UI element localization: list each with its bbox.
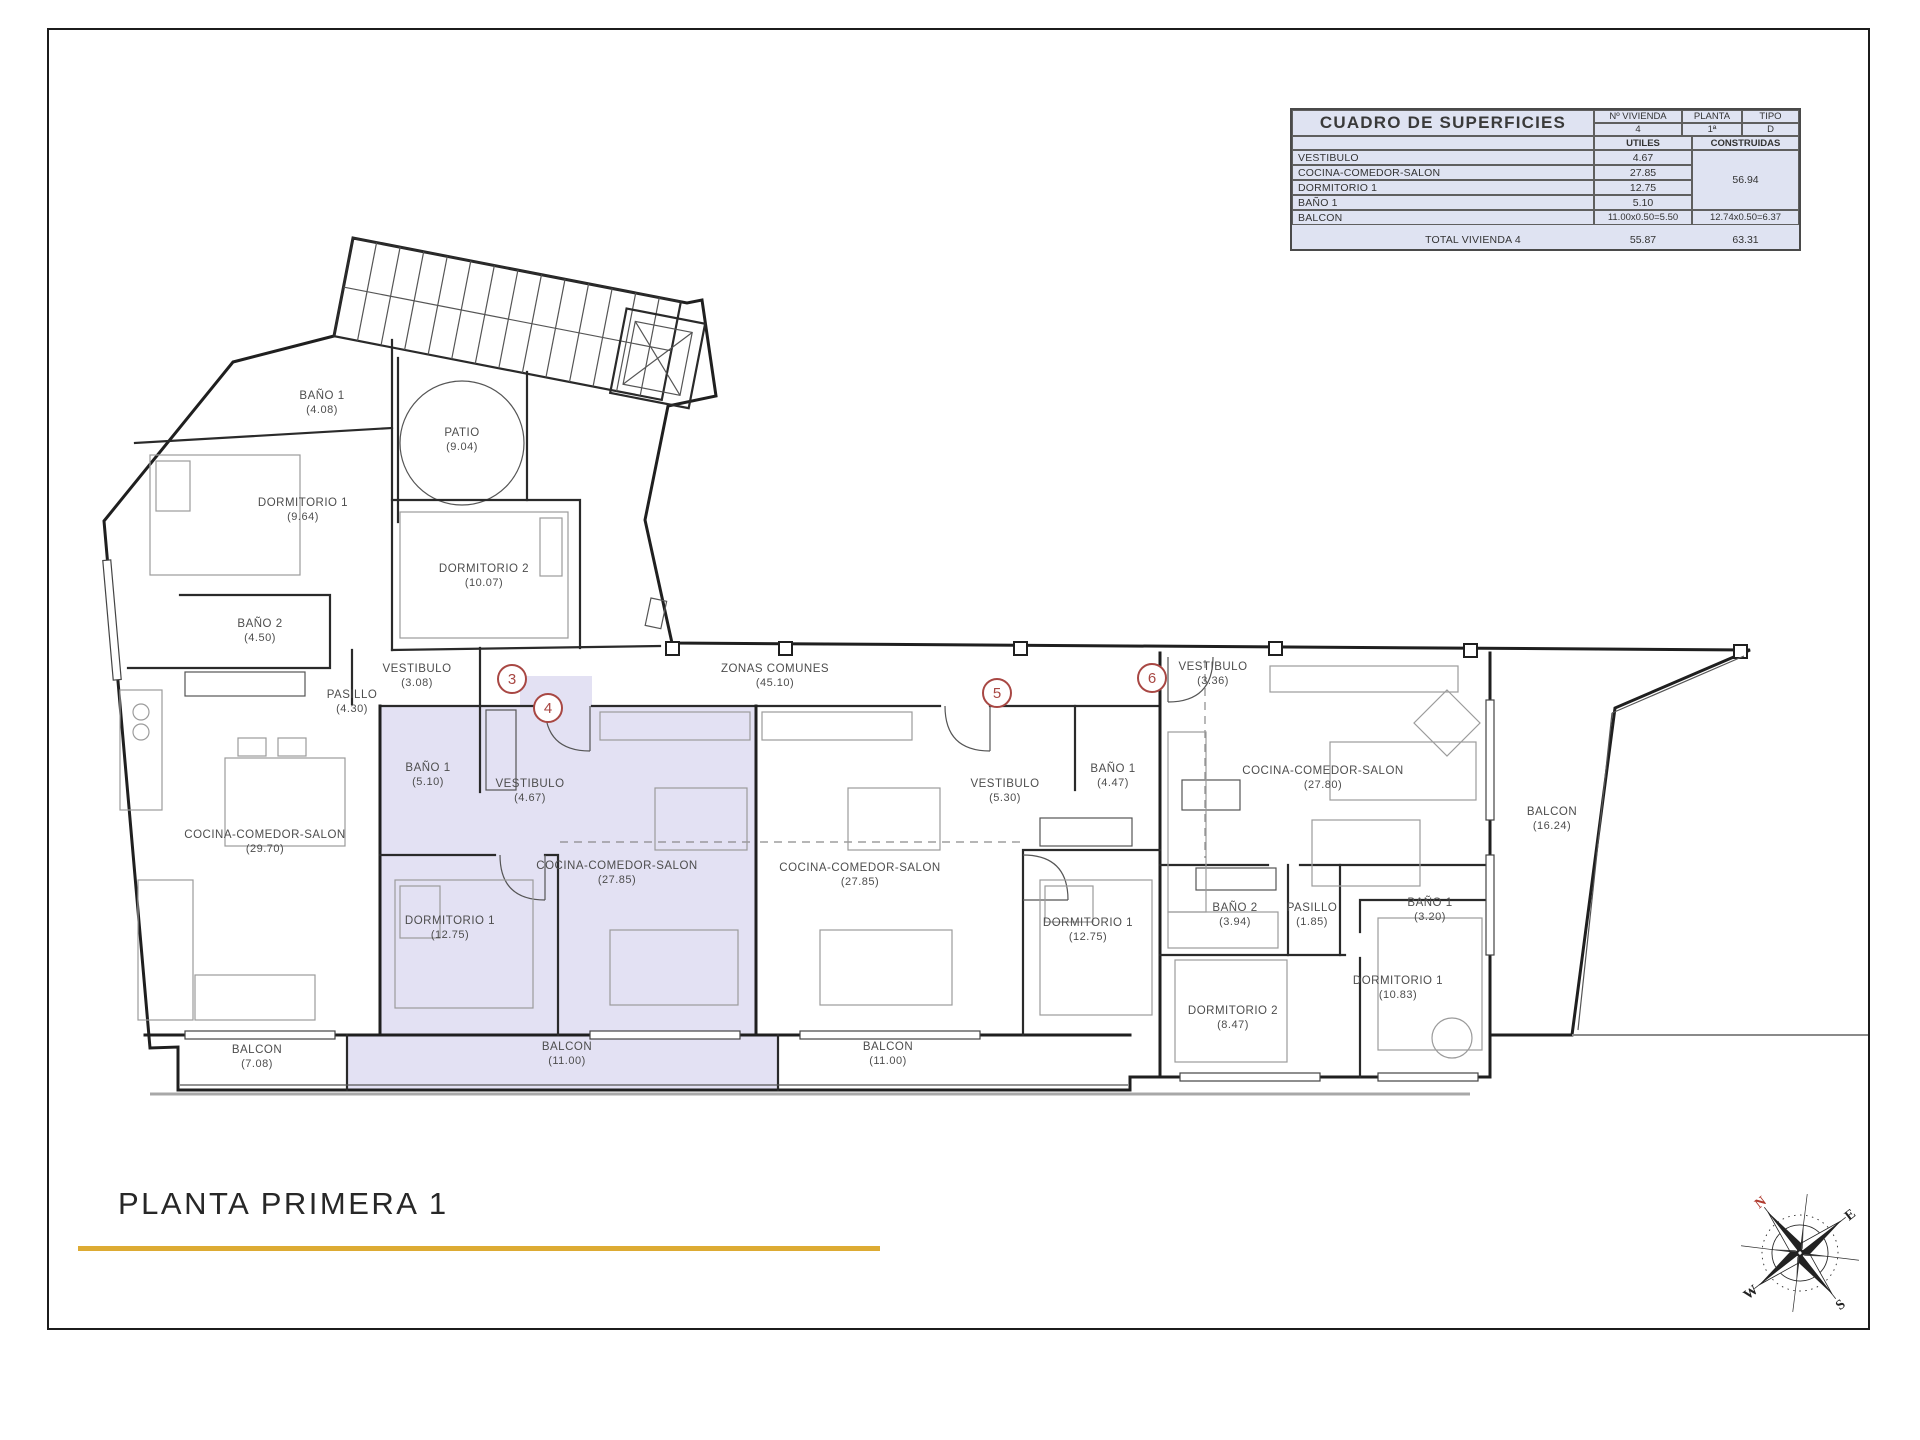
room-label: BAÑO 2 bbox=[237, 617, 282, 630]
room-area: (5.30) bbox=[989, 792, 1021, 804]
room-label: BAÑO 1 bbox=[1090, 762, 1135, 775]
row-utiles: 5.10 bbox=[1594, 195, 1692, 210]
room-label: BALCON bbox=[542, 1041, 592, 1053]
patio-courtyard bbox=[398, 358, 527, 522]
row-name: DORMITORIO 1 bbox=[1292, 180, 1594, 195]
surfaces-table-title: CUADRO DE SUPERFICIES bbox=[1292, 110, 1594, 136]
room-label: PASILLO bbox=[327, 689, 378, 701]
compass-north-label: N bbox=[1752, 1194, 1769, 1212]
room-area: (4.30) bbox=[336, 703, 368, 715]
compass-rose: N E S W bbox=[1701, 1155, 1899, 1354]
room-label: DORMITORIO 1 bbox=[1043, 917, 1133, 929]
room-area: (4.67) bbox=[514, 792, 546, 804]
room-label: VESTIBULO bbox=[495, 778, 564, 790]
unit-number: 5 bbox=[993, 685, 1001, 702]
room-area: (10.07) bbox=[465, 577, 503, 589]
col-tipo-header: TIPO bbox=[1742, 110, 1799, 123]
empty-header-cell bbox=[1292, 136, 1594, 150]
room-area: (4.08) bbox=[306, 404, 338, 416]
room-area: (27.85) bbox=[841, 876, 879, 888]
highlighted-unit-4 bbox=[347, 676, 778, 1090]
vivienda-value: 4 bbox=[1594, 123, 1682, 136]
room-label: VESTIBULO bbox=[970, 778, 1039, 790]
room-label: DORMITORIO 1 bbox=[1353, 975, 1443, 987]
planta-value: 1ª bbox=[1682, 123, 1742, 136]
construidas-header: CONSTRUIDAS bbox=[1692, 136, 1799, 150]
total-label: TOTAL VIVIENDA 4 bbox=[1352, 232, 1594, 248]
room-area: (4.47) bbox=[1097, 777, 1129, 789]
windows bbox=[103, 560, 1494, 1081]
room-area: (3.20) bbox=[1414, 911, 1446, 923]
room-area: (4.50) bbox=[244, 632, 276, 644]
balcon-construidas: 12.74x0.50=6.37 bbox=[1692, 210, 1799, 225]
room-area: (16.24) bbox=[1533, 820, 1571, 832]
total-construidas: 63.31 bbox=[1692, 232, 1799, 248]
room-area: (3.94) bbox=[1219, 916, 1251, 928]
title-underline bbox=[78, 1246, 880, 1251]
row-name: VESTIBULO bbox=[1292, 150, 1594, 165]
room-label: BAÑO 1 bbox=[299, 389, 344, 402]
row-name: BAÑO 1 bbox=[1292, 195, 1594, 210]
room-area: (7.08) bbox=[241, 1058, 273, 1070]
room-label: BALCON bbox=[863, 1041, 913, 1053]
row-utiles: 12.75 bbox=[1594, 180, 1692, 195]
room-label: DORMITORIO 2 bbox=[439, 563, 529, 575]
balcon-row-name: BALCON bbox=[1292, 210, 1594, 225]
room-area: (12.75) bbox=[1069, 931, 1107, 943]
tipo-value: D bbox=[1742, 123, 1799, 136]
staircase bbox=[333, 238, 708, 408]
room-area: (11.00) bbox=[548, 1055, 586, 1067]
wardrobe bbox=[185, 672, 305, 696]
room-area: (1.85) bbox=[1296, 916, 1328, 928]
floor-plan-page: 3 4 5 6 BAÑO 1 (4.08) PATIO (9.04) DORMI… bbox=[0, 0, 1920, 1440]
room-label: VESTIBULO bbox=[382, 663, 451, 675]
room-label: COCINA-COMEDOR-SALON bbox=[184, 829, 345, 841]
room-area: (5.10) bbox=[412, 776, 444, 788]
room-label: COCINA-COMEDOR-SALON bbox=[1242, 765, 1403, 777]
room-area: (45.10) bbox=[756, 677, 794, 689]
room-area: (8.47) bbox=[1217, 1019, 1249, 1031]
page-title: PLANTA PRIMERA 1 bbox=[118, 1186, 449, 1222]
room-label: BAÑO 2 bbox=[1212, 901, 1257, 914]
row-utiles: 27.85 bbox=[1594, 165, 1692, 180]
room-area: (3.08) bbox=[401, 677, 433, 689]
unit-number: 6 bbox=[1148, 670, 1156, 687]
balcon-utiles: 11.00x0.50=5.50 bbox=[1594, 210, 1692, 225]
room-label: PATIO bbox=[444, 427, 479, 439]
unit-number: 3 bbox=[508, 671, 516, 688]
col-vivienda-header: Nº VIVIENDA bbox=[1594, 110, 1682, 123]
unit-number: 4 bbox=[544, 700, 552, 717]
room-label: BAÑO 1 bbox=[405, 761, 450, 774]
room-label: DORMITORIO 1 bbox=[258, 497, 348, 509]
room-label: BAÑO 1 bbox=[1407, 896, 1452, 909]
room-label: PASILLO bbox=[1287, 902, 1338, 914]
room-area: (10.83) bbox=[1379, 989, 1417, 1001]
room-label: ZONAS COMUNES bbox=[721, 663, 829, 675]
room-label: DORMITORIO 2 bbox=[1188, 1005, 1278, 1017]
room-area: (9.64) bbox=[287, 511, 319, 523]
row-utiles: 4.67 bbox=[1594, 150, 1692, 165]
room-label: DORMITORIO 1 bbox=[405, 915, 495, 927]
compass-south-label: S bbox=[1833, 1297, 1849, 1314]
room-label: BALCON bbox=[232, 1044, 282, 1056]
room-label: COCINA-COMEDOR-SALON bbox=[536, 860, 697, 872]
room-label: BALCON bbox=[1527, 806, 1577, 818]
furniture bbox=[120, 455, 1482, 1062]
surfaces-table: CUADRO DE SUPERFICIES Nº VIVIENDA PLANTA… bbox=[1290, 108, 1801, 251]
total-utiles: 55.87 bbox=[1594, 232, 1692, 248]
room-area: (12.75) bbox=[431, 929, 469, 941]
compass-east-label: E bbox=[1842, 1207, 1859, 1225]
row-name: COCINA-COMEDOR-SALON bbox=[1292, 165, 1594, 180]
room-area: (27.80) bbox=[1304, 779, 1342, 791]
construidas-merged-value: 56.94 bbox=[1692, 150, 1799, 210]
room-area: (29.70) bbox=[246, 843, 284, 855]
col-planta-header: PLANTA bbox=[1682, 110, 1742, 123]
room-area: (27.85) bbox=[598, 874, 636, 886]
room-label: COCINA-COMEDOR-SALON bbox=[779, 862, 940, 874]
utiles-header: UTILES bbox=[1594, 136, 1692, 150]
room-area: (9.04) bbox=[446, 441, 478, 453]
room-label: VESTIBULO bbox=[1178, 661, 1247, 673]
room-area: (3.36) bbox=[1197, 675, 1229, 687]
room-area: (11.00) bbox=[869, 1055, 907, 1067]
